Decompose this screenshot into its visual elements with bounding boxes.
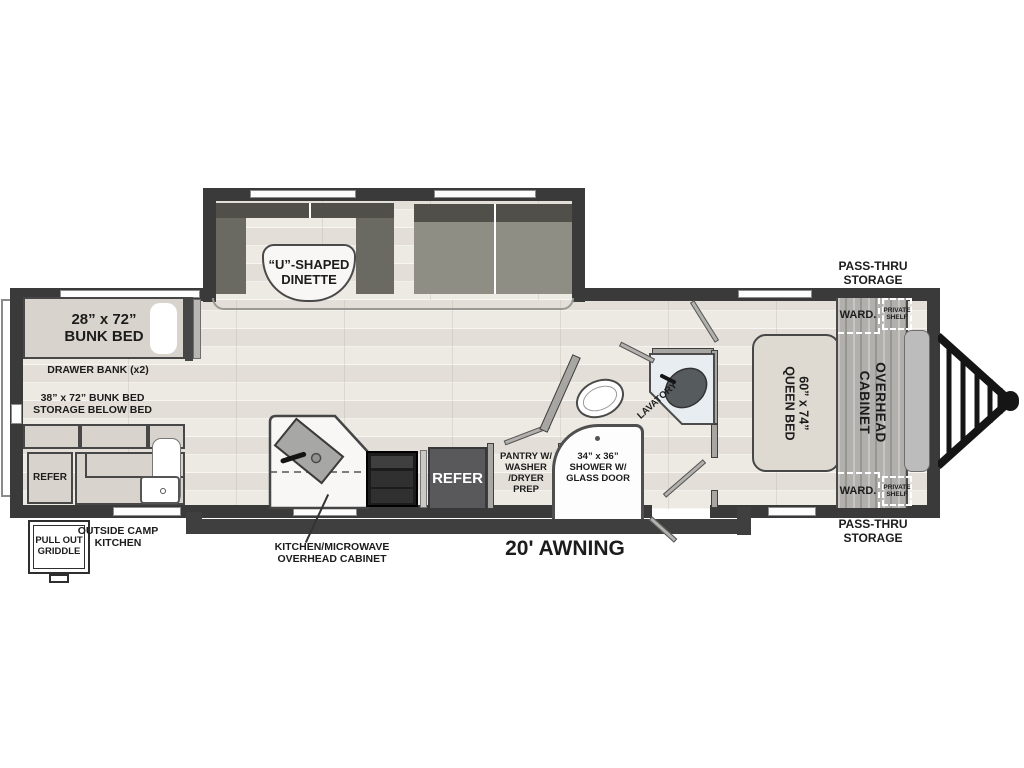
queen-bed-label: 60” x 74” QUEEN BED (782, 366, 811, 440)
refrigerator: REFER (428, 447, 487, 510)
private-shelf-bottom-label: PRIVATE SHELF (883, 484, 910, 499)
awning-end-right (737, 507, 751, 535)
outside-camp-kitchen-label: OUTSIDE CAMP KITCHEN (76, 525, 160, 549)
front-cap (904, 330, 930, 472)
wardrobe-top: WARD. (838, 298, 880, 334)
hitch-tongue (938, 328, 1020, 474)
window-campkitchen-bottom (113, 507, 181, 516)
dinette-back-cushions (216, 203, 394, 218)
dinette-label: “U”-SHAPED DINETTE (269, 258, 350, 288)
shower-drain (595, 436, 600, 441)
awning-label: 20' AWNING (495, 537, 635, 561)
stove-oven-lower (371, 489, 413, 503)
private-shelf-bottom: PRIVATE SHELF (882, 476, 912, 506)
hitch-coupler (1002, 391, 1019, 411)
window-bedroom-top (738, 290, 812, 298)
sofa-back-right (496, 204, 572, 222)
camp-sink-drain (160, 488, 166, 494)
bedroom-wall-upper (711, 424, 718, 458)
griddle-tab (49, 574, 69, 583)
wardrobe-bottom: WARD. (838, 472, 880, 508)
wardrobe-top-label: WARD. (840, 309, 877, 322)
private-shelf-top: PRIVATE SHELF (882, 298, 912, 330)
camp-refer-label: REFER (33, 472, 67, 484)
toilet-seat (579, 381, 621, 417)
kitchen-overhead-label: KITCHEN/MICROWAVE OVERHEAD CABINET (256, 541, 408, 565)
dinette-bench-left (216, 218, 246, 294)
bunk-end-panel (185, 297, 193, 361)
camp-counter-line-v (85, 452, 87, 478)
awning-end-left (186, 512, 202, 534)
stove-oven-upper (371, 471, 413, 487)
wardrobe-bottom-label: WARD. (840, 485, 877, 498)
bunk-storage-label: 38” x 72” BUNK BED STORAGE BELOW BED (15, 392, 170, 416)
sofa-divider (494, 204, 496, 294)
stove-top-drawer (371, 456, 413, 468)
cabinet-divider-panel (420, 450, 427, 508)
slideout-right-wall (572, 188, 585, 302)
sofa-seat-left (414, 222, 494, 294)
bunk-ladder (193, 299, 201, 359)
sofa-seat-right (496, 222, 572, 294)
sofa-back-left (414, 204, 494, 222)
slideout-floor-edge (212, 298, 574, 310)
drawer-bank-label: DRAWER BANK (x2) (23, 364, 173, 376)
dinette-back-divider (309, 203, 311, 218)
kitchen-counter-group (258, 406, 374, 512)
pass-thru-bottom-label: PASS-THRU STORAGE (831, 518, 915, 546)
lavatory-group (648, 346, 718, 428)
floorplan-canvas: “U”-SHAPED DINETTE 28” x 72” BUNK BED DR… (0, 0, 1024, 768)
slideout-left-wall (203, 188, 216, 302)
bedroom-wall-lower (711, 490, 718, 508)
private-shelf-top-label: PRIVATE SHELF (883, 307, 910, 322)
bunk-bed-label: 28” x 72” BUNK BED (64, 311, 143, 346)
bunk-pillow (150, 303, 177, 354)
shower-label: 34” x 36” SHOWER W/ GLASS DOOR (556, 452, 640, 485)
refrigerator-label: REFER (432, 470, 483, 487)
pass-thru-top-label: PASS-THRU STORAGE (833, 260, 913, 288)
slideout-window-right (434, 190, 536, 198)
window-bedroom-bottom (768, 507, 816, 516)
dinette-bench-right (356, 218, 394, 294)
slideout-window-left (250, 190, 356, 198)
camp-kitchen-refer: REFER (27, 452, 73, 504)
camp-kitchen-cabinet-1 (23, 424, 80, 449)
queen-bed: 60” x 74” QUEEN BED (752, 334, 840, 472)
overhead-cabinet-label: OVERHEAD CABINET (856, 363, 887, 444)
camp-kitchen-cabinet-2 (80, 424, 148, 449)
